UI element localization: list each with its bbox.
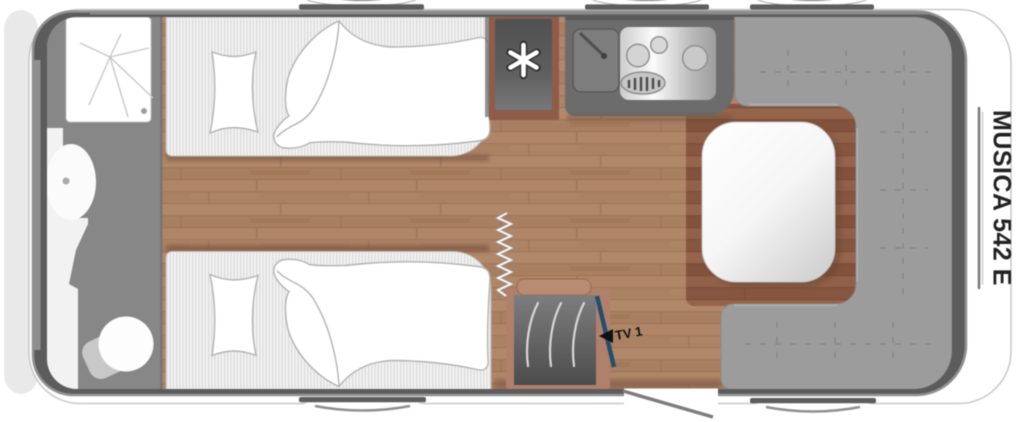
svg-text:MUSICA 542 E: MUSICA 542 E	[988, 110, 1016, 286]
